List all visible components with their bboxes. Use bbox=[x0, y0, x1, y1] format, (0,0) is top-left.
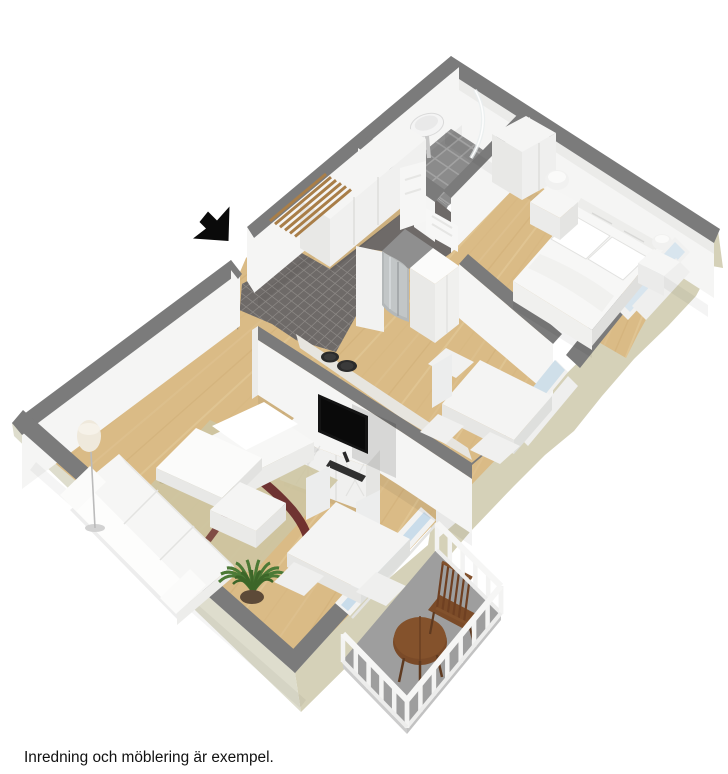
svg-text:Inredning och möblering är exe: Inredning och möblering är exempel. bbox=[24, 749, 274, 766]
